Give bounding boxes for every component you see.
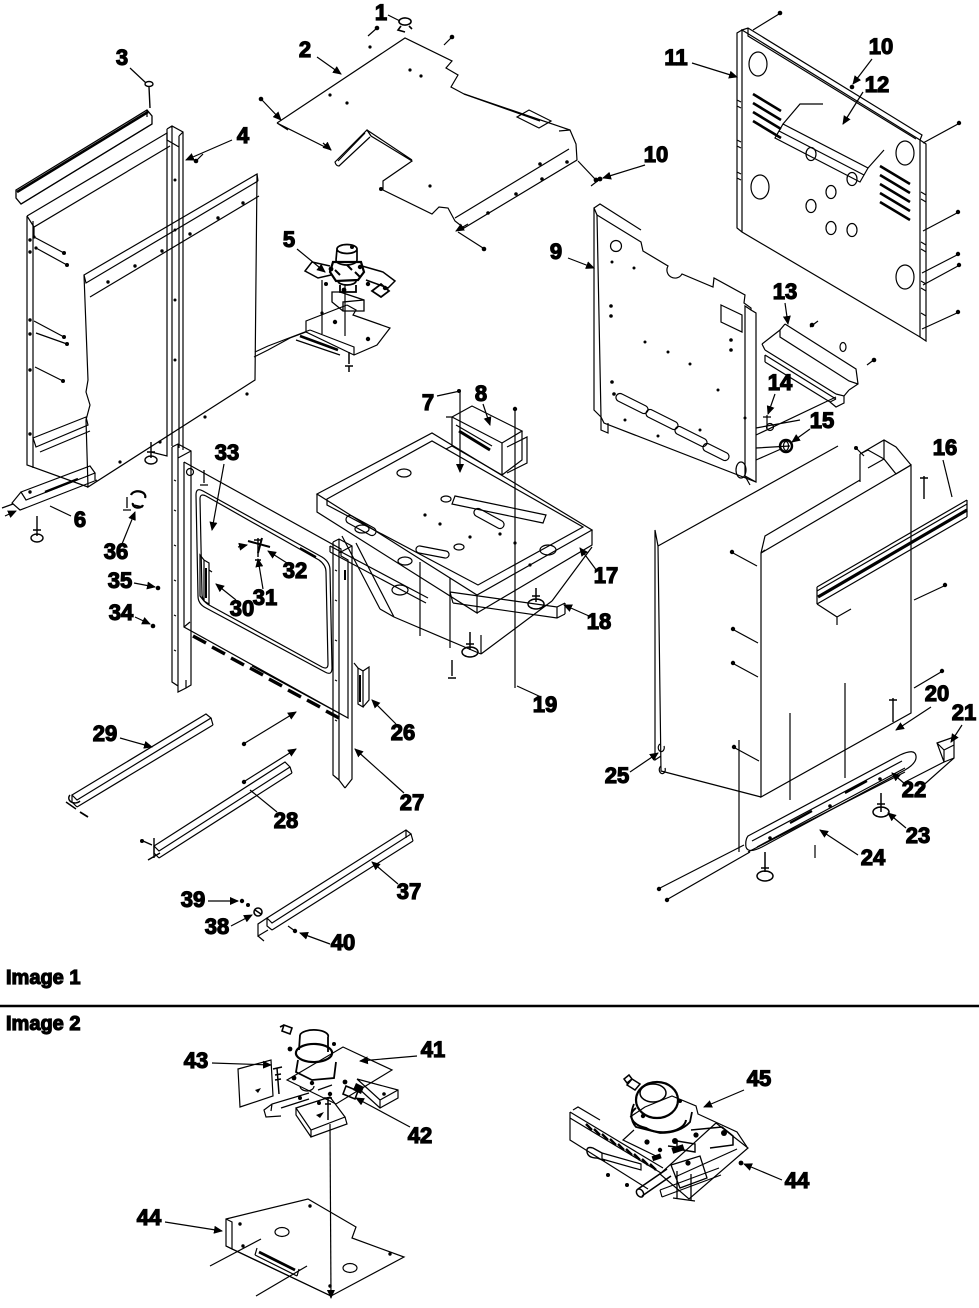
svg-text:36: 36 (104, 539, 128, 564)
svg-text:3: 3 (116, 45, 128, 70)
svg-text:45: 45 (747, 1066, 771, 1091)
svg-text:35: 35 (108, 568, 132, 593)
svg-text:5: 5 (283, 227, 295, 252)
svg-text:33: 33 (215, 440, 239, 465)
svg-text:19: 19 (533, 692, 557, 717)
svg-text:44: 44 (785, 1168, 810, 1193)
svg-text:27: 27 (400, 790, 424, 815)
svg-text:39: 39 (181, 887, 205, 912)
svg-text:42: 42 (408, 1123, 432, 1148)
svg-text:34: 34 (109, 600, 134, 625)
svg-text:23: 23 (906, 823, 930, 848)
svg-text:6: 6 (74, 507, 86, 532)
svg-text:14: 14 (768, 370, 793, 395)
svg-text:1: 1 (375, 0, 387, 25)
svg-text:31: 31 (253, 585, 277, 610)
svg-text:12: 12 (865, 72, 889, 97)
svg-text:18: 18 (587, 609, 611, 634)
svg-text:10: 10 (644, 142, 668, 167)
svg-text:41: 41 (421, 1037, 445, 1062)
svg-text:21: 21 (952, 700, 976, 725)
svg-text:17: 17 (594, 563, 618, 588)
svg-text:2: 2 (299, 37, 311, 62)
svg-text:20: 20 (925, 681, 949, 706)
svg-text:8: 8 (475, 381, 487, 406)
svg-text:40: 40 (331, 930, 355, 955)
svg-text:16: 16 (933, 435, 957, 460)
svg-text:11: 11 (664, 45, 687, 70)
svg-text:22: 22 (902, 777, 926, 802)
svg-text:4: 4 (237, 123, 250, 148)
svg-text:10: 10 (869, 34, 893, 59)
svg-text:37: 37 (397, 879, 421, 904)
svg-text:28: 28 (274, 808, 298, 833)
svg-text:13: 13 (773, 279, 797, 304)
svg-text:32: 32 (283, 558, 307, 583)
svg-text:44: 44 (137, 1205, 162, 1230)
svg-text:43: 43 (184, 1048, 208, 1073)
svg-text:25: 25 (605, 763, 629, 788)
svg-text:24: 24 (861, 845, 886, 870)
svg-text:29: 29 (93, 721, 117, 746)
svg-text:30: 30 (230, 596, 254, 621)
svg-text:Image 1: Image 1 (6, 967, 80, 989)
svg-text:26: 26 (391, 720, 415, 745)
svg-text:9: 9 (550, 239, 562, 264)
svg-text:Image 2: Image 2 (6, 1013, 80, 1035)
svg-text:7: 7 (422, 390, 434, 415)
svg-text:15: 15 (810, 408, 834, 433)
svg-text:38: 38 (205, 914, 229, 939)
